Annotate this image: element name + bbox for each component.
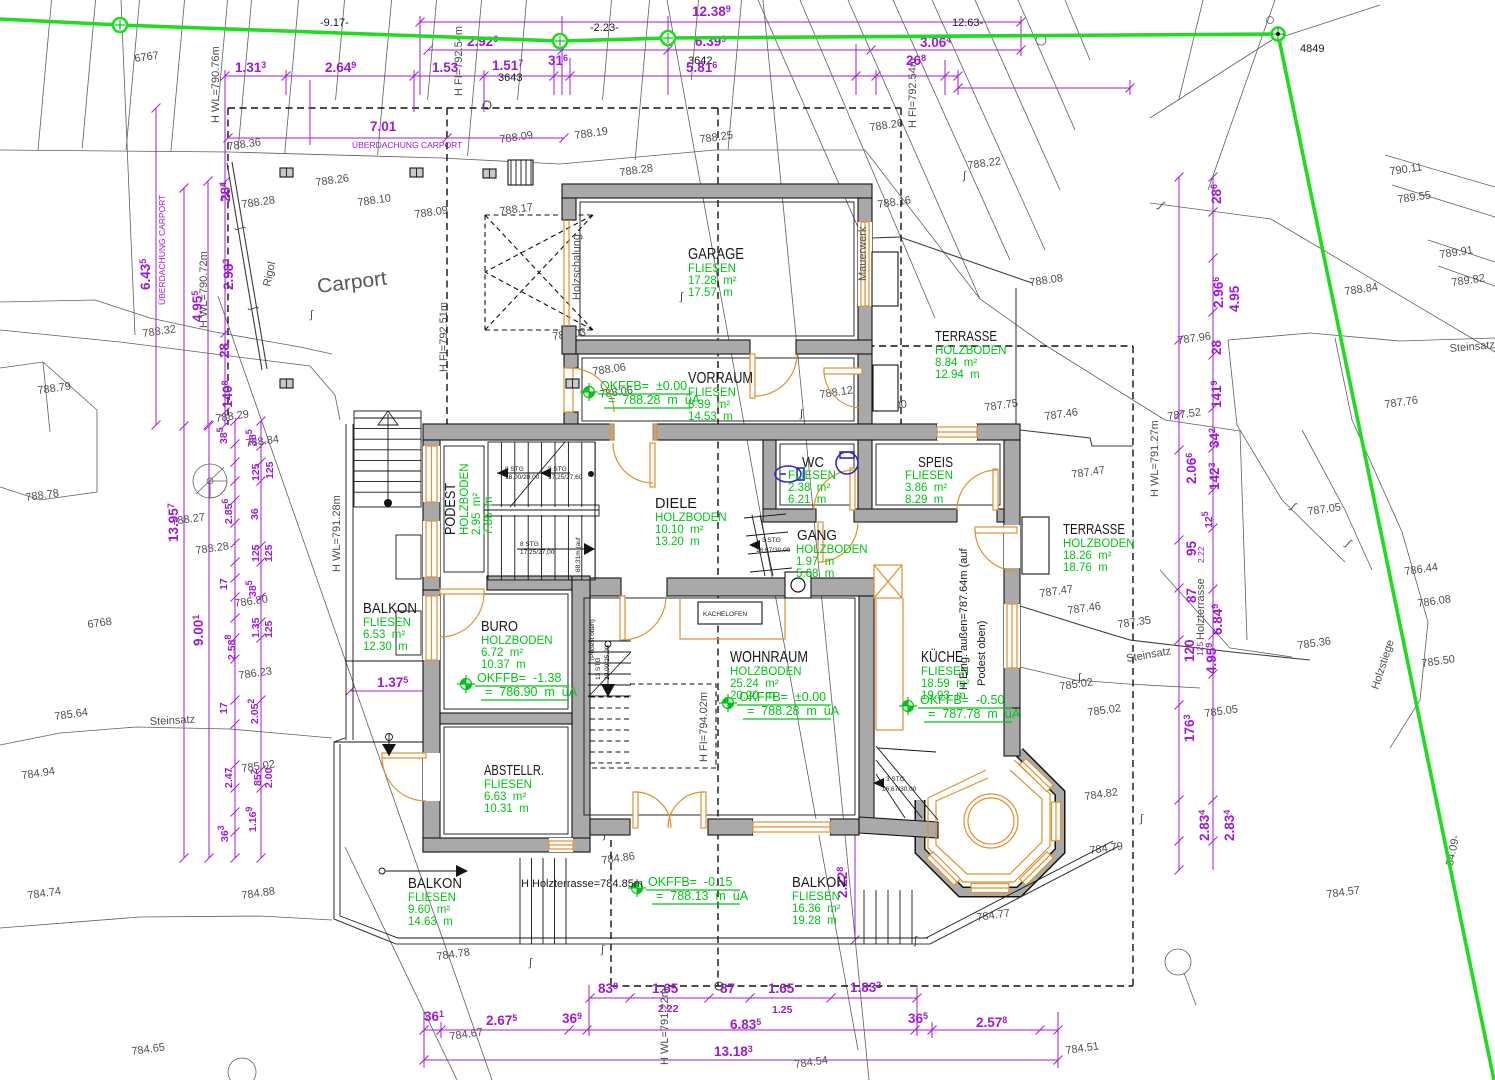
svg-text:13.20 m: 13.20 m (655, 536, 700, 548)
svg-text:7.86 m: 7.86 m (483, 497, 495, 535)
svg-text:ABSTELLR.: ABSTELLR. (484, 763, 544, 779)
svg-text:SPEIS: SPEIS (918, 455, 953, 471)
svg-text:PODEST: PODEST (443, 483, 459, 535)
svg-text:2.00: 2.00 (263, 767, 275, 788)
svg-text:H FI=792.51m: H FI=792.51m (438, 302, 450, 372)
svg-text:HOLZBODEN: HOLZBODEN (459, 463, 471, 535)
svg-text:HOLZBODEN: HOLZBODEN (935, 345, 1007, 357)
svg-text:19.28 m: 19.28 m (792, 915, 837, 927)
svg-text:HOLZBODEN: HOLZBODEN (796, 544, 868, 556)
svg-text:H FI=794.02m: H FI=794.02m (698, 692, 710, 762)
svg-text:KACHELOFEN: KACHELOFEN (703, 611, 747, 618)
svg-text:28: 28 (1209, 339, 1224, 355)
svg-text:18,00/28,00: 18,00/28,00 (505, 474, 540, 481)
svg-text:1.53: 1.53 (432, 60, 459, 75)
svg-text:TERRASSE: TERRASSE (1063, 522, 1125, 538)
svg-text:3 STG: 3 STG (762, 537, 781, 544)
svg-text:FLIESEN: FLIESEN (905, 470, 953, 482)
svg-text:OKFFB= -1.38: OKFFB= -1.38 (477, 671, 561, 685)
svg-text:125: 125 (250, 544, 262, 562)
svg-text:(Podest oben): (Podest oben) (589, 619, 596, 660)
svg-text:VORRAUM: VORRAUM (688, 370, 753, 387)
svg-text:25.24 m²: 25.24 m² (730, 678, 779, 690)
svg-text:16,67/30,00: 16,67/30,00 (756, 547, 791, 554)
svg-text:3 STG: 3 STG (886, 776, 905, 783)
svg-text:BALKON: BALKON (408, 876, 462, 892)
svg-text:12.63-: 12.63- (952, 17, 984, 29)
svg-text:2.95 m²: 2.95 m² (471, 493, 483, 535)
svg-text:Holzterrasse: Holzterrasse (1195, 578, 1207, 640)
svg-text:Podest oben): Podest oben) (976, 621, 988, 686)
svg-text:17.28 m²: 17.28 m² (688, 275, 737, 287)
svg-text:OKFFB= ±0.00: OKFFB= ±0.00 (600, 379, 687, 393)
svg-text:FLIESEN: FLIESEN (688, 263, 736, 275)
svg-text:FLIESEN: FLIESEN (792, 891, 840, 903)
svg-text:WC: WC (802, 455, 824, 471)
svg-text:FLIESEN: FLIESEN (788, 470, 836, 482)
svg-text:WOHNRAUM: WOHNRAUM (730, 649, 808, 666)
svg-text:8.84 m²: 8.84 m² (935, 357, 977, 369)
svg-text:28: 28 (217, 342, 232, 358)
svg-text:HOLZBODEN: HOLZBODEN (730, 666, 802, 678)
svg-text:KÜCHE: KÜCHE (921, 648, 963, 666)
svg-text:ÜBERDACHUNG CARPORT: ÜBERDACHUNG CARPORT (157, 195, 167, 305)
svg-text:= 788.13 m üA: = 788.13 m üA (656, 889, 749, 903)
svg-text:125: 125 (263, 620, 275, 638)
svg-text:8.29 m: 8.29 m (905, 494, 943, 506)
svg-text:-9.17-: -9.17- (320, 17, 349, 29)
svg-text:9.60 m²: 9.60 m² (408, 904, 450, 916)
svg-text:FLIESEN: FLIESEN (408, 892, 456, 904)
svg-text:H FI=792.54m: H FI=792.54m (907, 58, 919, 128)
svg-text:17,25/27,00: 17,25/27,00 (520, 549, 555, 556)
svg-text:HOLZBODEN: HOLZBODEN (481, 635, 553, 647)
svg-text:BALKON: BALKON (792, 875, 846, 891)
svg-text:DIELE: DIELE (655, 496, 697, 512)
svg-text:12.30 m: 12.30 m (363, 641, 408, 653)
svg-text:1.25: 1.25 (772, 1004, 793, 1016)
svg-text:36: 36 (249, 508, 261, 520)
svg-text:2.22: 2.22 (1196, 546, 1206, 563)
svg-text:10.31 m: 10.31 m (484, 803, 529, 815)
svg-text:125: 125 (263, 544, 275, 562)
svg-text:BALKON: BALKON (363, 601, 417, 617)
svg-text:8 STG: 8 STG (548, 466, 567, 473)
svg-text:OKFFB= -0.15: OKFFB= -0.15 (648, 875, 732, 889)
svg-text:125: 125 (264, 461, 276, 479)
svg-text:Holzschalung: Holzschalung (571, 234, 583, 300)
svg-text:18.76 m: 18.76 m (1063, 562, 1108, 574)
svg-text:OKFFB= -0.50: OKFFB= -0.50 (920, 693, 1004, 707)
svg-text:125: 125 (250, 463, 262, 481)
svg-text:14.63 m: 14.63 m (408, 916, 453, 928)
svg-text:H Eing. außen=787.64m (auf: H Eing. außen=787.64m (auf (958, 547, 970, 690)
svg-text:18.26 m²: 18.26 m² (1063, 550, 1112, 562)
svg-text:2.47: 2.47 (223, 767, 235, 788)
svg-text:6.21 m: 6.21 m (788, 494, 826, 506)
svg-text:H Holzterrasse=784.85m: H Holzterrasse=784.85m (521, 878, 643, 890)
svg-text:17,25/27,60: 17,25/27,60 (548, 474, 583, 481)
svg-text:1.65: 1.65 (768, 981, 795, 996)
svg-text:HOLZBODEN: HOLZBODEN (1063, 538, 1135, 550)
svg-text:2.22: 2.22 (658, 1003, 679, 1015)
svg-text:1.65: 1.65 (652, 981, 679, 996)
svg-text:OKFFB= ±0.00: OKFFB= ±0.00 (739, 690, 826, 704)
svg-text:FLIESEN: FLIESEN (363, 617, 411, 629)
svg-text:14.53 m: 14.53 m (688, 411, 733, 423)
svg-text:= 786.90 m üA: = 786.90 m üA (485, 685, 578, 699)
svg-text:1.35: 1.35 (250, 617, 262, 638)
svg-text:10.37 m: 10.37 m (481, 659, 526, 671)
svg-text:= 788.28 m üA: = 788.28 m üA (747, 704, 840, 718)
svg-text:Mauerwerk: Mauerwerk (857, 226, 869, 281)
svg-text:8 STG: 8 STG (520, 541, 539, 548)
svg-text:13.957: 13.957 (166, 503, 181, 542)
svg-text:9 STG: 9 STG (505, 466, 524, 473)
svg-text:H WL=791.28m: H WL=791.28m (331, 495, 343, 572)
svg-text:= 787.78 m üA: = 787.78 m üA (928, 707, 1021, 721)
svg-text:17: 17 (218, 578, 230, 590)
svg-text:16.36 m²: 16.36 m² (792, 903, 841, 915)
svg-text:10.10 m²: 10.10 m² (655, 524, 704, 536)
svg-text:13 STG: 13 STG (595, 658, 602, 680)
svg-text:H WL=790.76m: H WL=790.76m (210, 46, 222, 123)
svg-text:3.86 m²: 3.86 m² (905, 482, 947, 494)
svg-text:FLIESEN: FLIESEN (484, 779, 532, 791)
svg-text:5.68 m: 5.68 m (796, 568, 834, 580)
svg-text:7.01: 7.01 (370, 119, 397, 134)
svg-text:16,67/30,00: 16,67/30,00 (882, 786, 917, 793)
svg-text:6.63 m²: 6.63 m² (484, 791, 526, 803)
svg-text:6.72 m²: 6.72 m² (481, 647, 523, 659)
svg-text:20,00/25,00: 20,00/25,00 (604, 645, 611, 680)
svg-text:HOLZBODEN: HOLZBODEN (655, 512, 727, 524)
svg-text:TERRASSE: TERRASSE (935, 329, 997, 345)
svg-text:88,31m (auf: 88,31m (auf (575, 537, 582, 572)
svg-text:12.94 m: 12.94 m (935, 369, 980, 381)
svg-text:4.95: 4.95 (1227, 285, 1242, 312)
svg-text:87: 87 (1184, 588, 1199, 603)
svg-text:6.53 m²: 6.53 m² (363, 629, 405, 641)
svg-text:2.38 m²: 2.38 m² (788, 482, 830, 494)
svg-text:4849: 4849 (1300, 43, 1324, 55)
svg-text:17.57 m: 17.57 m (688, 287, 733, 299)
svg-text:GARAGE: GARAGE (688, 246, 744, 263)
svg-text:H WL=791.27m: H WL=791.27m (1149, 420, 1161, 497)
svg-text:ÜBERDACHUNG CARPORT: ÜBERDACHUNG CARPORT (352, 140, 462, 150)
svg-text:13.183: 13.183 (714, 1044, 753, 1059)
svg-text:= 788.28 m üA: = 788.28 m üA (608, 393, 701, 407)
svg-text:17: 17 (218, 702, 230, 714)
svg-text:1.97 m: 1.97 m (796, 556, 834, 568)
svg-text:H WL=791.22m: H WL=791.22m (659, 988, 671, 1065)
svg-text:12.389: 12.389 (692, 4, 731, 19)
svg-text:GANG: GANG (797, 528, 837, 544)
svg-text:3643: 3643 (498, 72, 522, 84)
svg-text:Steinsatz: Steinsatz (150, 714, 196, 728)
svg-text:BURO: BURO (481, 619, 518, 635)
svg-text:-2.23-: -2.23- (590, 22, 619, 34)
